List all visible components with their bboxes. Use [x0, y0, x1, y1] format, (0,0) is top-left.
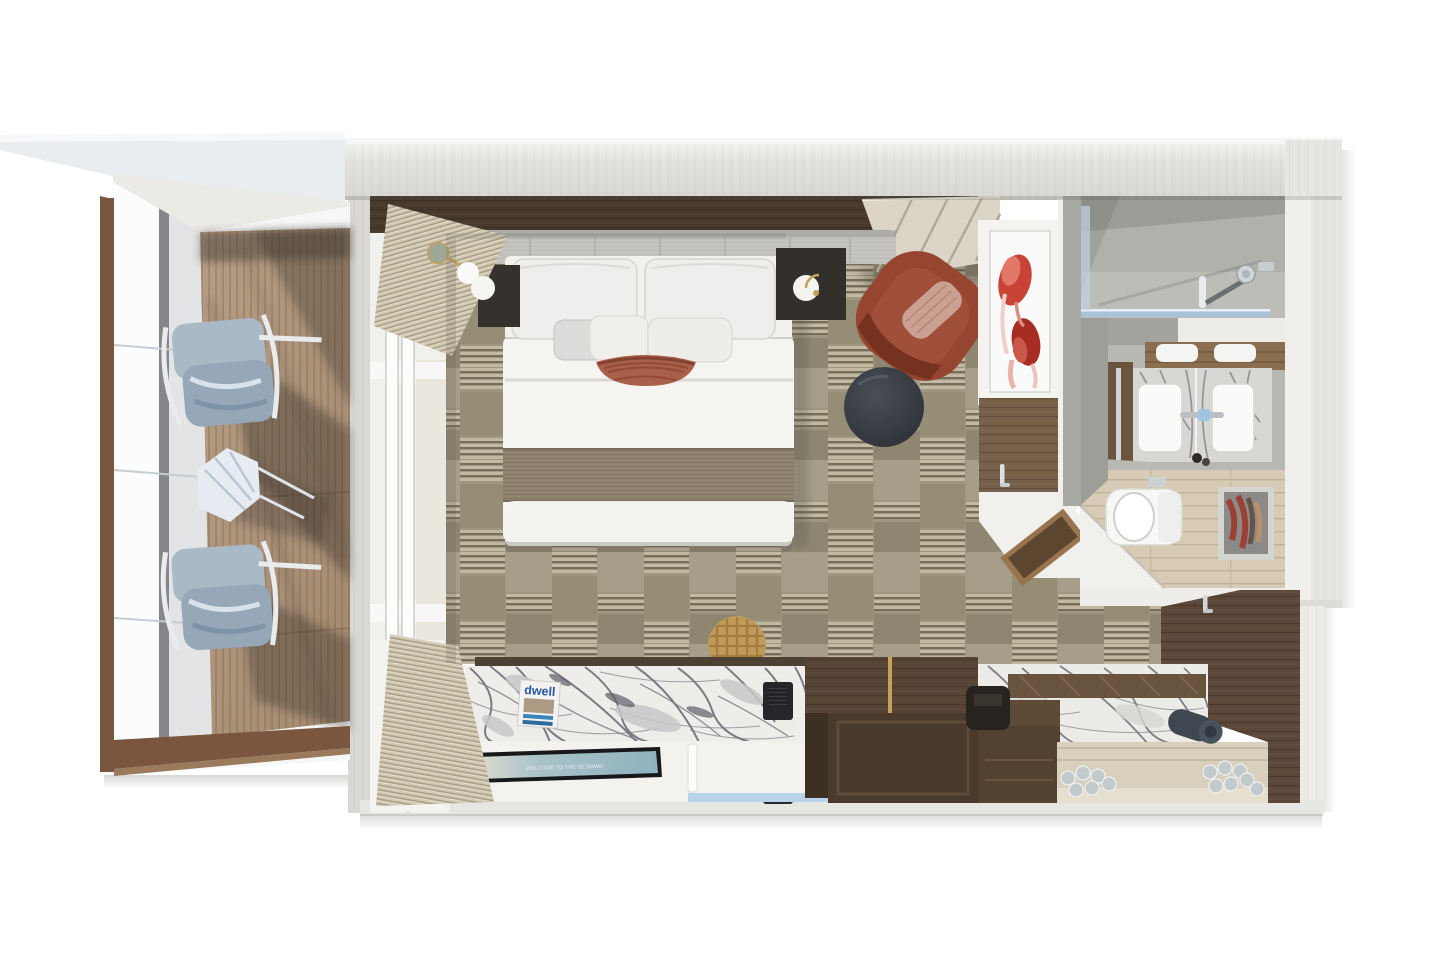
svg-text:dwell: dwell — [524, 683, 556, 699]
